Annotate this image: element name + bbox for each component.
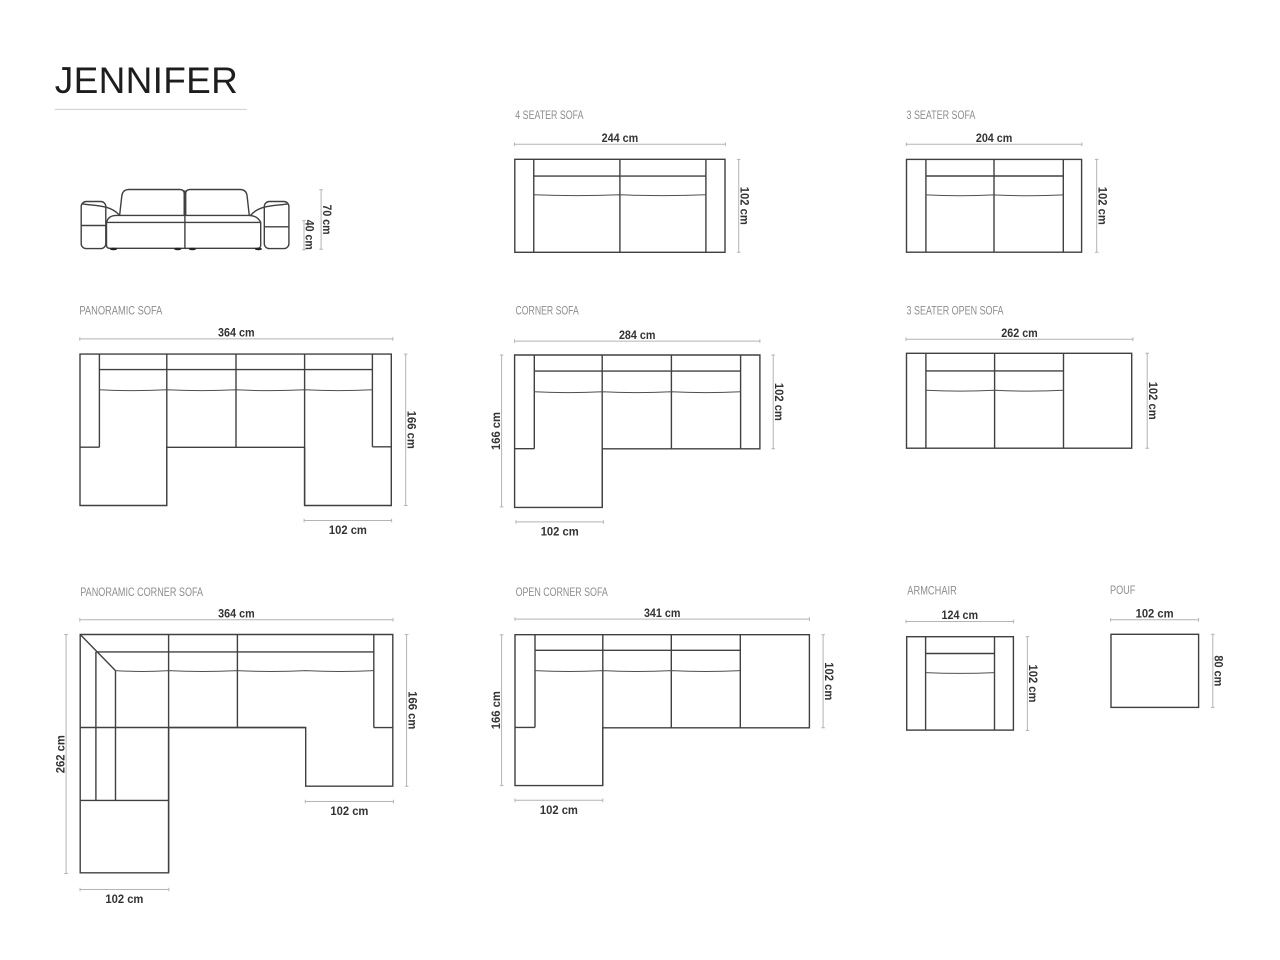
svg-text:262 cm: 262 cm [53, 735, 67, 773]
svg-text:102 cm: 102 cm [105, 892, 143, 906]
svg-text:102 cm: 102 cm [772, 383, 786, 421]
svg-text:166 cm: 166 cm [489, 691, 503, 729]
svg-text:JENNIFER: JENNIFER [55, 60, 238, 101]
svg-text:4 SEATER SOFA: 4 SEATER SOFA [515, 110, 583, 122]
svg-text:124 cm: 124 cm [942, 608, 979, 622]
svg-text:262 cm: 262 cm [1001, 326, 1038, 340]
svg-text:OPEN CORNER SOFA: OPEN CORNER SOFA [516, 587, 608, 599]
svg-text:40 cm: 40 cm [303, 220, 317, 250]
svg-text:PANORAMIC CORNER SOFA: PANORAMIC CORNER SOFA [80, 587, 203, 599]
svg-text:70 cm: 70 cm [320, 205, 334, 235]
svg-text:PANORAMIC SOFA: PANORAMIC SOFA [79, 305, 162, 317]
svg-text:364 cm: 364 cm [218, 607, 255, 621]
svg-text:341 cm: 341 cm [644, 606, 681, 620]
svg-text:102 cm: 102 cm [1146, 382, 1160, 420]
svg-text:102 cm: 102 cm [330, 804, 368, 818]
svg-text:364 cm: 364 cm [218, 326, 255, 340]
svg-text:244 cm: 244 cm [602, 131, 639, 145]
svg-text:166 cm: 166 cm [489, 412, 503, 450]
svg-text:3 SEATER SOFA: 3 SEATER SOFA [907, 110, 976, 122]
svg-text:102 cm: 102 cm [1095, 187, 1109, 225]
svg-text:102 cm: 102 cm [540, 803, 578, 817]
svg-text:102 cm: 102 cm [737, 187, 751, 225]
svg-text:284 cm: 284 cm [619, 328, 656, 342]
svg-text:80 cm: 80 cm [1212, 655, 1226, 686]
svg-text:CORNER SOFA: CORNER SOFA [516, 305, 580, 317]
svg-text:3 SEATER OPEN SOFA: 3 SEATER OPEN SOFA [907, 305, 1004, 317]
svg-text:166 cm: 166 cm [404, 411, 418, 449]
svg-text:204 cm: 204 cm [976, 131, 1013, 145]
svg-text:166 cm: 166 cm [405, 691, 419, 729]
svg-text:102 cm: 102 cm [541, 525, 579, 539]
svg-text:102 cm: 102 cm [822, 662, 836, 700]
svg-text:ARMCHAIR: ARMCHAIR [907, 586, 957, 598]
svg-text:102 cm: 102 cm [329, 523, 367, 537]
svg-text:POUF: POUF [1110, 585, 1135, 597]
svg-text:102 cm: 102 cm [1136, 607, 1174, 621]
svg-text:102 cm: 102 cm [1026, 665, 1040, 703]
